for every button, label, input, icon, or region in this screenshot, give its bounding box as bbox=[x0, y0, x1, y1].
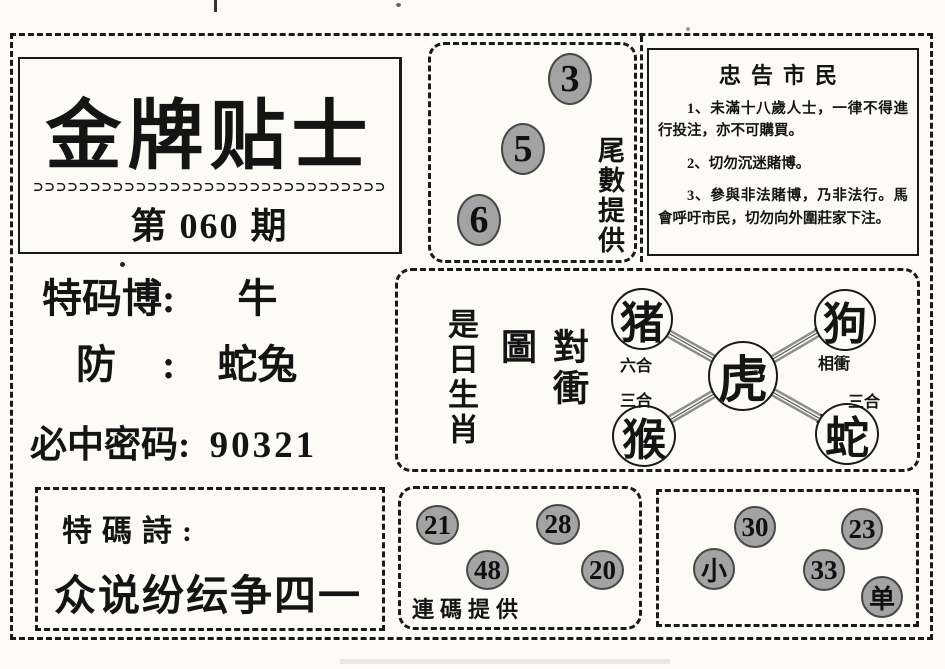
tail-numbers-label: 尾數提供 bbox=[590, 136, 629, 256]
scan-artifact bbox=[396, 3, 401, 7]
pair-number-circle: 20 bbox=[581, 550, 624, 590]
poem-label: 特碼詩: bbox=[62, 506, 382, 550]
zodiac-center-name: 虎 bbox=[718, 340, 768, 412]
lucky-code-label: 必中密码: bbox=[30, 425, 190, 466]
extra-tip-circle: 33 bbox=[803, 549, 845, 591]
issue-number: 第 060 期 bbox=[20, 197, 399, 249]
pair-number: 21 bbox=[424, 510, 451, 541]
pair-number-circle: 28 bbox=[536, 504, 580, 545]
pair-number-circle: 48 bbox=[466, 550, 509, 590]
extra-tip: 33 bbox=[811, 555, 838, 586]
pair-number: 48 bbox=[474, 555, 501, 586]
advice-divider bbox=[640, 36, 643, 262]
advice-item: 2、切勿沉迷賭博。 bbox=[658, 153, 908, 175]
zodiac-relation: 三合 bbox=[620, 387, 652, 411]
extra-tip: 小 bbox=[701, 551, 727, 588]
tail-number: 6 bbox=[470, 198, 489, 242]
poem-line: 众说纷纭争四一 bbox=[54, 562, 382, 623]
special-code-value: 牛 bbox=[237, 276, 277, 321]
advice-body: 1、未滿十八歲人士，一律不得進行投注，亦不可購買。 2、切勿沉迷賭博。 3、參與… bbox=[649, 90, 917, 230]
advice-item: 3、參與非法賭博，乃非法行。馬會呼吁市民，切勿向外圍莊家下注。 bbox=[658, 185, 908, 230]
extra-tip-circle: 30 bbox=[734, 506, 776, 548]
special-code-label: 特码博: bbox=[42, 276, 175, 321]
zodiac-corner-name: 猴 bbox=[622, 404, 666, 468]
title-box: 金牌贴士 ⊃⊃⊃⊃⊃⊃⊃⊃⊃⊃⊃⊃⊃⊃⊃⊃⊃⊃⊃⊃⊃⊃⊃⊃⊃⊃⊃⊃⊃⊃⊃ 第 0… bbox=[18, 57, 402, 254]
zodiac-corner-name: 猪 bbox=[620, 287, 664, 351]
page-root: 金牌贴士 ⊃⊃⊃⊃⊃⊃⊃⊃⊃⊃⊃⊃⊃⊃⊃⊃⊃⊃⊃⊃⊃⊃⊃⊃⊃⊃⊃⊃⊃⊃⊃ 第 0… bbox=[0, 0, 945, 669]
zodiac-corner-name: 狗 bbox=[823, 288, 867, 352]
brand-title: 金牌贴士 bbox=[20, 99, 399, 175]
extra-tip: 23 bbox=[849, 514, 876, 545]
extra-tip-circle: 小 bbox=[693, 548, 735, 590]
pair-numbers-label: 連碼提供 bbox=[412, 592, 524, 624]
guard-line: 防 : 蛇兔 bbox=[76, 332, 297, 390]
zodiac-corner-circle-dog: 狗 bbox=[814, 289, 876, 351]
tail-number-circle: 5 bbox=[501, 123, 545, 175]
zodiac-relation: 三合 bbox=[848, 388, 880, 412]
extra-tip: 单 bbox=[869, 579, 895, 616]
advice-box: 忠告市民 1、未滿十八歲人士，一律不得進行投注，亦不可購買。 2、切勿沉迷賭博。… bbox=[647, 48, 919, 256]
title-decoration-row: ⊃⊃⊃⊃⊃⊃⊃⊃⊃⊃⊃⊃⊃⊃⊃⊃⊃⊃⊃⊃⊃⊃⊃⊃⊃⊃⊃⊃⊃⊃⊃ bbox=[20, 179, 399, 195]
scan-artifact bbox=[686, 27, 690, 31]
special-code-line: 特码博: 牛 bbox=[42, 266, 277, 324]
lucky-code-value: 90321 bbox=[210, 425, 318, 466]
pair-number: 20 bbox=[589, 555, 616, 586]
guard-value: 蛇兔 bbox=[217, 342, 297, 387]
lucky-code-line: 必中密码: 90321 bbox=[30, 414, 317, 468]
tail-number-circle: 6 bbox=[457, 194, 501, 246]
pair-number-circle: 21 bbox=[416, 505, 459, 545]
poem-box: 特碼詩: 众说纷纭争四一 bbox=[35, 487, 385, 631]
zodiac-corner-circle-pig: 猪 bbox=[611, 288, 673, 350]
extra-tip-circle: 单 bbox=[861, 576, 903, 618]
tail-number: 3 bbox=[561, 57, 580, 101]
scan-artifact bbox=[214, 0, 217, 12]
zodiac-center-circle: 虎 bbox=[708, 341, 778, 411]
extra-tip: 30 bbox=[742, 512, 769, 543]
advice-title: 忠告市民 bbox=[649, 58, 917, 90]
zodiac-corner-circle-monkey: 猴 bbox=[612, 405, 676, 467]
zodiac-relation: 相衝 bbox=[818, 350, 850, 374]
tail-number-circle: 3 bbox=[548, 53, 592, 105]
zodiac-corner-circle-snake: 蛇 bbox=[815, 403, 879, 465]
pair-number: 28 bbox=[545, 509, 572, 540]
guard-label: 防 : bbox=[76, 342, 193, 387]
scan-artifact bbox=[340, 659, 670, 664]
advice-item: 1、未滿十八歲人士，一律不得進行投注，亦不可購買。 bbox=[658, 98, 908, 143]
tail-number: 5 bbox=[514, 127, 533, 171]
zodiac-relation: 六合 bbox=[620, 352, 652, 376]
extra-tip-circle: 23 bbox=[841, 508, 883, 550]
